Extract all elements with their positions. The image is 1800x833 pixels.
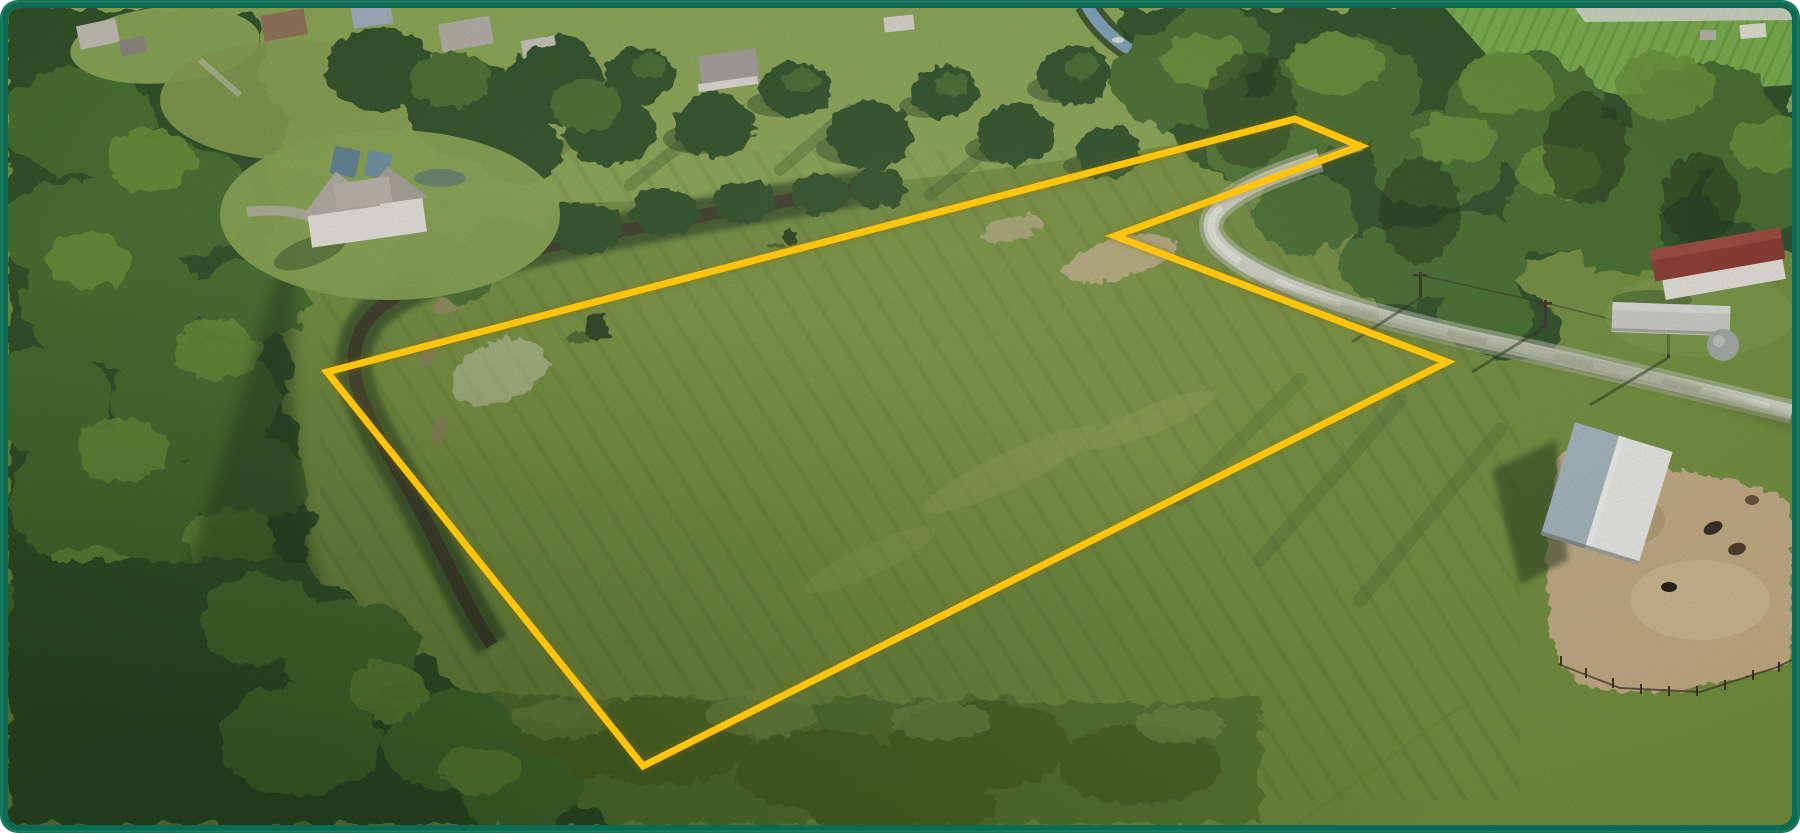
photo-grain xyxy=(8,8,1792,825)
screenshot xyxy=(0,0,1800,833)
photo-content xyxy=(0,0,1800,833)
aerial-photo xyxy=(0,0,1800,833)
